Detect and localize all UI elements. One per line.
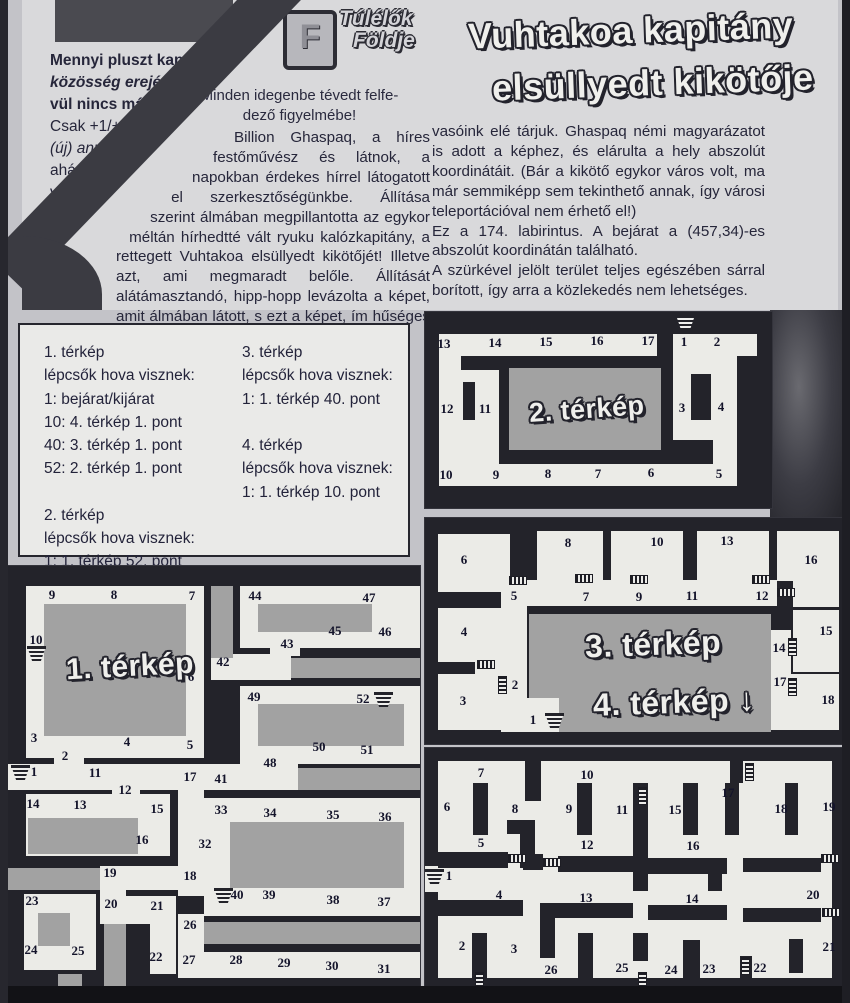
ladder-icon <box>777 588 795 597</box>
logo-text: Túlélők Földje <box>339 8 415 52</box>
map-point-number: 12 <box>119 782 132 798</box>
map-point-number: 11 <box>616 802 628 818</box>
wall-block <box>555 903 633 918</box>
map-point-number: 34 <box>264 805 277 821</box>
map-title-label: 3. térkép <box>584 624 721 666</box>
map-point-number: 38 <box>327 892 340 908</box>
ladder-icon <box>752 575 770 584</box>
map-point-number: 6 <box>648 465 655 481</box>
stairs-icon <box>27 646 46 661</box>
map3-maze: 6810131657911124151423171813. térkép4. t… <box>425 518 845 744</box>
map-point-number: 8 <box>545 466 552 482</box>
ladder-icon <box>822 908 840 917</box>
map-point-number: 26 <box>545 962 558 978</box>
wall-block <box>691 374 711 420</box>
corridor-floor <box>793 581 839 607</box>
map-point-number: 15 <box>820 623 833 639</box>
map-point-number: 4 <box>124 734 131 750</box>
map-point-number: 9 <box>636 589 643 605</box>
map-point-number: 13 <box>438 336 451 352</box>
map-point-number: 1 <box>530 712 537 728</box>
map-point-number: 12 <box>581 837 594 853</box>
map-point-number: 15 <box>669 802 682 818</box>
map-point-number: 20 <box>807 887 820 903</box>
stairs-icon <box>425 869 444 884</box>
map-point-number: 24 <box>665 962 678 978</box>
map-point-number: 4 <box>718 399 725 415</box>
map-point-number: 5 <box>716 466 723 482</box>
map4-maze: 7101719689111518512161413142023252423222… <box>425 748 845 988</box>
ladder-icon <box>575 574 593 583</box>
map-point-number: 44 <box>249 588 262 604</box>
wall-block <box>463 382 475 420</box>
map-point-number: 11 <box>479 401 491 417</box>
map-point-number: 7 <box>595 466 602 482</box>
corridor-floor <box>8 764 298 790</box>
stairs-icon <box>214 888 233 903</box>
map-point-number: 14 <box>489 335 502 351</box>
map-point-number: 15 <box>540 334 553 350</box>
map-point-number: 3 <box>31 730 38 746</box>
map-point-number: 8 <box>512 801 519 817</box>
left-scan-edge <box>0 0 8 1003</box>
bottom-scan-edge <box>0 986 850 1003</box>
map-point-number: 25 <box>616 960 629 976</box>
wall-block <box>789 939 803 973</box>
map-point-number: 18 <box>775 801 788 817</box>
map-point-number: 4 <box>461 624 468 640</box>
map-point-number: 46 <box>379 624 392 640</box>
map-point-number: 14 <box>686 891 699 907</box>
map-point-number: 42 <box>217 654 230 670</box>
map-point-number: 9 <box>49 587 56 603</box>
map-point-number: 32 <box>199 836 212 852</box>
mud-area <box>230 822 404 888</box>
article-column-1: Billion Ghaspaq, a híres festőművész és … <box>116 128 430 347</box>
map-point-number: 4 <box>496 887 503 903</box>
map-point-number: 39 <box>263 887 276 903</box>
corridor-floor <box>439 464 737 486</box>
map-point-number: 14 <box>773 640 786 656</box>
map-point-number: 12 <box>441 401 454 417</box>
map-point-number: 16 <box>805 552 818 568</box>
map-point-number: 23 <box>26 893 39 909</box>
map-point-number: 37 <box>378 894 391 910</box>
wall-block <box>523 854 543 870</box>
map-point-number: 30 <box>326 958 339 974</box>
map-point-number: 51 <box>361 742 374 758</box>
map-point-number: 24 <box>25 942 38 958</box>
wall-block <box>578 933 593 978</box>
map-title-label: 4. térkép ↓ <box>592 681 755 724</box>
map-point-number: 23 <box>703 961 716 977</box>
ladder-icon <box>745 763 754 781</box>
map-point-number: 2 <box>512 677 519 693</box>
mud-area <box>291 658 420 678</box>
map-point-number: 17 <box>722 785 735 801</box>
map-point-number: 21 <box>823 939 836 955</box>
map-point-number: 13 <box>580 890 593 906</box>
map-point-number: 10 <box>581 767 594 783</box>
wall-block <box>743 858 821 872</box>
wall-block <box>438 900 523 916</box>
map-point-number: 18 <box>822 692 835 708</box>
ladder-icon <box>509 576 527 585</box>
map-point-number: 29 <box>278 955 291 971</box>
mud-area <box>258 604 372 632</box>
ladder-icon <box>741 957 750 975</box>
map-point-number: 36 <box>379 809 392 825</box>
map-point-number: 7 <box>189 588 196 604</box>
map1-maze: 9871063452111174112141315163219182320212… <box>8 566 420 986</box>
map-point-number: 1 <box>446 868 453 884</box>
ladder-icon <box>498 676 507 694</box>
map-point-number: 22 <box>754 960 767 976</box>
map-point-number: 17 <box>774 674 787 690</box>
map-point-number: 12 <box>756 588 769 604</box>
map-point-number: 5 <box>187 737 194 753</box>
map-point-number: 16 <box>687 838 700 854</box>
map-point-number: 3 <box>460 693 467 709</box>
wall-block <box>743 908 821 922</box>
mud-area <box>204 922 420 944</box>
map-point-number: 3 <box>511 941 518 957</box>
ladder-icon <box>638 787 647 805</box>
map-point-number: 13 <box>74 797 87 813</box>
ladder-icon <box>508 854 526 863</box>
map-point-number: 19 <box>104 865 117 881</box>
map-point-number: 11 <box>89 765 101 781</box>
corridor-floor <box>793 610 839 672</box>
stairs-icon <box>676 315 695 330</box>
wall-block <box>648 905 727 920</box>
map-point-number: 50 <box>313 739 326 755</box>
magazine-page: Mennyi pluszt kap Őrközösség erejétőlvül… <box>0 0 850 1003</box>
corridor-floor <box>438 534 510 592</box>
map-point-number: 43 <box>281 636 294 652</box>
map-point-number: 2 <box>459 938 466 954</box>
wall-block <box>683 940 700 978</box>
map-point-number: 15 <box>151 801 164 817</box>
right-scan-edge <box>842 0 850 1003</box>
mud-area <box>104 924 126 988</box>
map-point-number: 45 <box>329 623 342 639</box>
map-point-number: 17 <box>184 769 197 785</box>
map-point-number: 9 <box>566 801 573 817</box>
wall-block <box>577 783 592 835</box>
map-point-number: 20 <box>105 896 118 912</box>
map-point-number: 10 <box>651 534 664 550</box>
mud-area <box>211 586 233 658</box>
logo-line1: Túlélők <box>339 8 415 30</box>
wall-block <box>507 820 521 834</box>
map-point-number: 8 <box>565 535 572 551</box>
map2-maze: 13141516171212113410987652. térkép <box>425 312 772 508</box>
map-point-number: 1 <box>31 764 38 780</box>
map-title-label: 1. térkép <box>65 647 195 688</box>
wall-block <box>525 761 541 801</box>
ladder-icon <box>821 854 839 863</box>
wall-block <box>730 761 743 783</box>
map-point-number: 16 <box>591 333 604 349</box>
legend-column-1: 1. térkép lépcsők hova visznek: 1: bejár… <box>44 341 195 574</box>
map-point-number: 33 <box>215 802 228 818</box>
ladder-icon <box>630 575 648 584</box>
map-point-number: 8 <box>111 587 118 603</box>
mud-area <box>38 913 70 946</box>
map-point-number: 6 <box>444 799 451 815</box>
mud-area <box>258 704 404 746</box>
map-point-number: 27 <box>183 952 196 968</box>
mud-area <box>58 974 82 986</box>
map-point-number: 21 <box>151 898 164 914</box>
mud-area <box>28 818 138 854</box>
wall-block <box>540 903 555 958</box>
map-point-number: 47 <box>363 590 376 606</box>
map-point-number: 5 <box>478 835 485 851</box>
wall-block <box>683 783 698 835</box>
map-point-number: 11 <box>686 588 698 604</box>
map-point-number: 5 <box>511 588 518 604</box>
wall-block <box>558 856 633 872</box>
map-point-number: 13 <box>721 533 734 549</box>
map-point-number: 9 <box>493 467 500 483</box>
map-point-number: 3 <box>679 400 686 416</box>
wall-block <box>438 852 508 868</box>
map-point-number: 31 <box>378 961 391 977</box>
map-point-number: 14 <box>27 796 40 812</box>
legend-column-2: 3. térkép lépcsők hova visznek: 1: 1. té… <box>242 341 393 504</box>
mud-area <box>298 768 420 790</box>
map-point-number: 2 <box>714 334 721 350</box>
map-point-number: 1 <box>681 334 688 350</box>
map-point-number: 16 <box>136 832 149 848</box>
map-point-number: 48 <box>264 755 277 771</box>
logo-monogram-icon: F <box>283 10 337 70</box>
map-point-number: 6 <box>461 552 468 568</box>
notice-text: Minden idegenbe tévedt felfe- dező figye… <box>192 86 407 127</box>
map-point-number: 52 <box>357 691 370 707</box>
map-point-number: 49 <box>248 689 261 705</box>
map-point-number: 19 <box>823 799 836 815</box>
ladder-icon <box>543 858 561 867</box>
logo-line2: Földje <box>353 30 415 52</box>
stairs-icon <box>11 765 30 780</box>
map-point-number: 26 <box>184 917 197 933</box>
wall-block <box>633 933 648 961</box>
map-point-number: 25 <box>72 943 85 959</box>
corridor-floor <box>438 608 510 662</box>
map-point-number: 22 <box>150 949 163 965</box>
mud-area <box>8 868 100 890</box>
map-point-number: 10 <box>440 467 453 483</box>
wall-block <box>708 858 722 891</box>
map-point-number: 7 <box>583 589 590 605</box>
ladder-icon <box>477 660 495 669</box>
stairs-icon <box>374 692 393 707</box>
article-column-2: vasóink elé tárjuk. Ghaspaq némi magyará… <box>432 122 765 301</box>
map-point-number: 35 <box>327 807 340 823</box>
map-point-number: 18 <box>184 868 197 884</box>
map-point-number: 7 <box>478 765 485 781</box>
map-point-number: 41 <box>215 771 228 787</box>
map-point-number: 2 <box>62 748 69 764</box>
wall-block <box>473 783 488 835</box>
stairs-legend-box: 1. térkép lépcsők hova visznek: 1: bejár… <box>18 323 410 557</box>
map-point-number: 28 <box>230 952 243 968</box>
ladder-icon <box>788 638 797 656</box>
stairs-icon <box>545 713 564 728</box>
ladder-icon <box>788 678 797 696</box>
map-point-number: 17 <box>642 333 655 349</box>
